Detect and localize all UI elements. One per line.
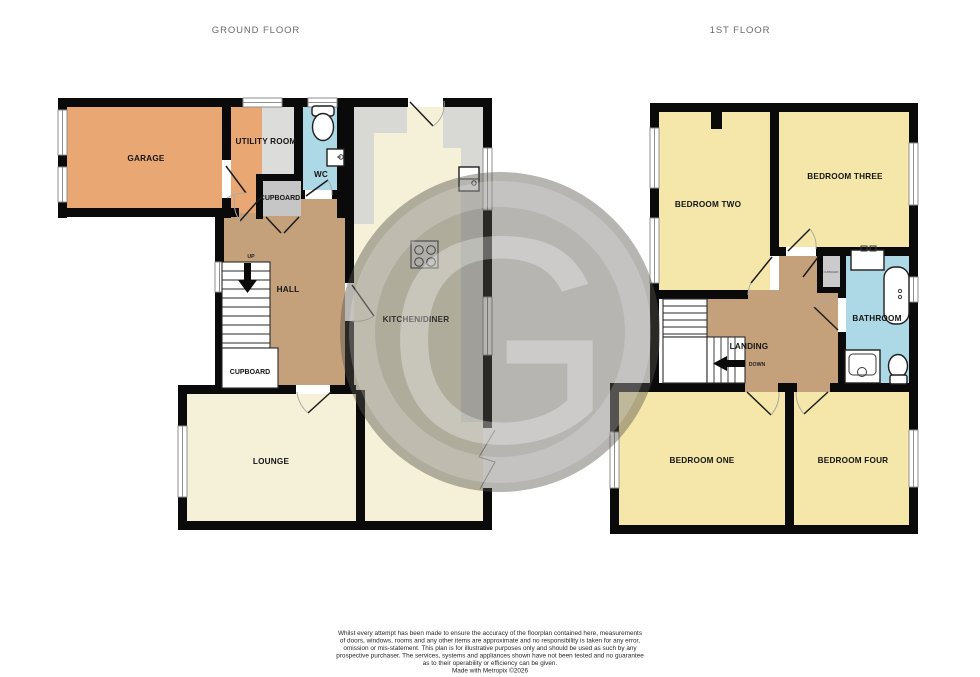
bathroom-basin-icon — [845, 350, 880, 383]
watermark-letter: G — [385, 175, 614, 505]
disclaimer-line: of doors, windows, rooms and any other i… — [340, 638, 640, 645]
bathroom-sink-icon — [851, 246, 884, 270]
bedroom-one-label: BEDROOM ONE — [670, 456, 735, 465]
cupboard-under-stairs-room — [222, 348, 278, 388]
bedroom-three-label: BEDROOM THREE — [807, 172, 883, 181]
up-arrow-icon — [244, 263, 251, 281]
landing-label: LANDING — [730, 342, 769, 351]
bedroom-four-label: BEDROOM FOUR — [818, 456, 889, 465]
lounge-label: LOUNGE — [253, 457, 290, 466]
sink-icon — [327, 149, 344, 166]
garage-label: GARAGE — [127, 154, 164, 163]
watermark: G — [340, 172, 660, 505]
toilet-icon — [312, 106, 334, 141]
disclaimer-line: prospective purchaser. The services, sys… — [336, 653, 644, 660]
floorplan-image: GARAGE UTILITY ROOM WC CUPBOARD HALL CUP… — [0, 0, 980, 677]
ground-floor-title: GROUND FLOOR — [212, 25, 300, 36]
airing-cupboard-label: CUPBOARD — [824, 270, 839, 274]
floorplan-page: GARAGE UTILITY ROOM WC CUPBOARD HALL CUP… — [0, 0, 980, 677]
stairs-up-label: UP — [247, 254, 255, 260]
disclaimer-line: as to their operability or efficiency ca… — [423, 660, 558, 667]
stairs-down-label: DOWN — [749, 362, 766, 368]
made-with-credit: Made with Metropix ©2026 — [452, 667, 529, 675]
toilet-icon — [889, 355, 908, 385]
disclaimer-line: Whilst every attempt has been made to en… — [338, 630, 642, 637]
cupboard-under-stairs-label: CUPBOARD — [230, 369, 270, 376]
kitchen-counter — [354, 107, 374, 224]
disclaimer-line: omission or mis-statement. This plan is … — [343, 645, 637, 652]
wc-label: WC — [314, 170, 328, 179]
bedroom-two-label: BEDROOM TWO — [675, 200, 742, 209]
hall-label: HALL — [277, 285, 300, 294]
cupboard-label: CUPBOARD — [260, 195, 300, 202]
disclaimer: Whilst every attempt has been made to en… — [336, 630, 644, 675]
down-arrow-icon — [727, 360, 745, 367]
first-floor-title: 1ST FLOOR — [710, 25, 771, 36]
bathroom-label: BATHROOM — [852, 314, 901, 323]
utility-room-label: UTILITY ROOM — [236, 137, 297, 146]
